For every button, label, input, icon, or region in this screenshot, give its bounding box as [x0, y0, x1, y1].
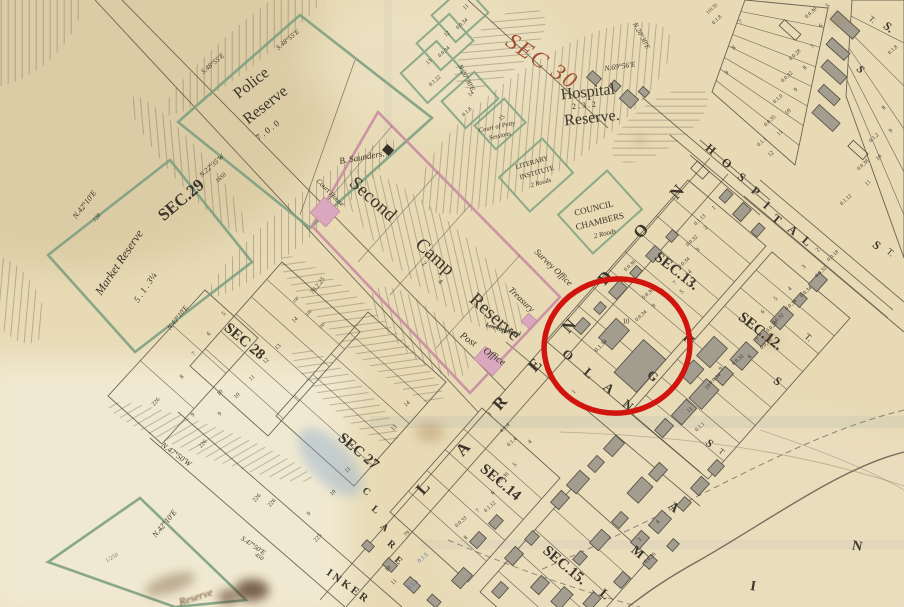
circled-lot-number: 10 — [623, 318, 631, 326]
map-image: PoliceReserve7 . 0 . 0SEC.29Market Reser… — [0, 0, 904, 607]
historical-map-canvas: PoliceReserve7 . 0 . 0SEC.29Market Reser… — [0, 0, 904, 607]
